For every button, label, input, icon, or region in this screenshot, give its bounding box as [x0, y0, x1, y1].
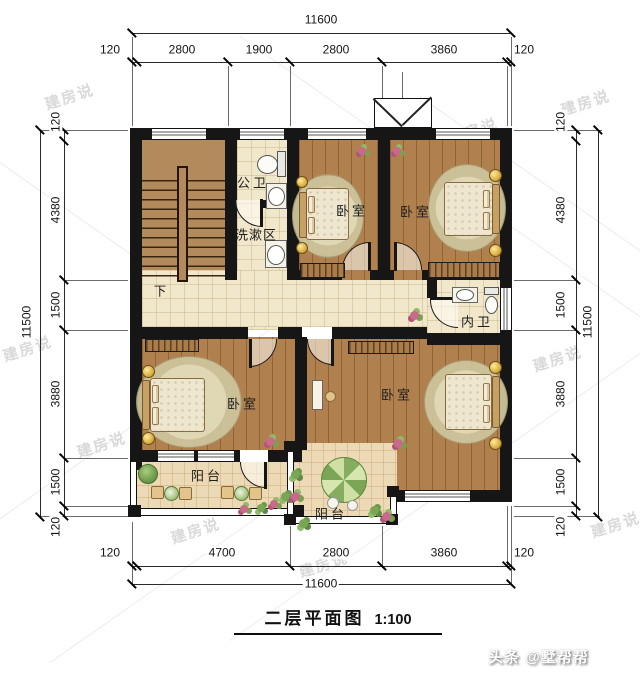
flower-pot-icon [240, 505, 248, 513]
door-leaf [368, 242, 371, 271]
table-icon [347, 500, 358, 511]
dim-top-seg: 120 [512, 43, 536, 56]
chair-icon [179, 487, 192, 500]
parasol-icon [321, 457, 367, 503]
watermark-text: 建房说 [588, 507, 640, 543]
drawing-scale: 1:100 [374, 612, 411, 628]
balcony-left-rail [130, 508, 304, 516]
dim-right-seg: 3880 [554, 379, 567, 410]
chair-icon [151, 486, 164, 499]
extension-line [514, 280, 576, 281]
door-leaf [264, 462, 267, 489]
wall-corridor-north [370, 270, 394, 280]
extension-line [402, 72, 403, 98]
dim-top-total: 11600 [303, 13, 339, 26]
dim-bottom-total: 11600 [303, 577, 339, 590]
dim-line-left-total [40, 130, 41, 517]
table-icon [164, 486, 179, 501]
extension-line [228, 66, 229, 126]
dim-bottom-seg: 3860 [429, 546, 460, 559]
flower-pot-icon [358, 147, 366, 155]
window [240, 128, 284, 140]
label-public-bath: 公卫 [237, 173, 269, 192]
wall-ensuite-west [427, 280, 437, 298]
dim-top-seg: 2800 [167, 43, 198, 56]
chair-icon [325, 391, 336, 402]
door-leaf [260, 199, 263, 227]
dim-left-seg: 4380 [49, 195, 62, 226]
dim-bottom-seg: 4700 [207, 546, 238, 559]
window [152, 128, 206, 140]
lamp-icon [296, 242, 308, 254]
label-ensuite-bath: 内卫 [461, 312, 493, 331]
toilet-tank-icon [277, 151, 286, 177]
desk-icon [312, 380, 323, 410]
bed-headboard-icon [142, 380, 150, 430]
dim-left-seg: 120 [49, 110, 62, 134]
flower-pot-icon [393, 147, 401, 155]
wall-bedrooms-divider-top [378, 140, 390, 280]
pillow-icon [308, 217, 315, 234]
rail-post [128, 505, 141, 517]
rail-post [284, 441, 296, 452]
wardrobe-icon [348, 341, 414, 354]
dim-right-seg: 120 [554, 515, 567, 539]
dim-bottom-seg: 120 [512, 546, 536, 559]
extension-line [382, 526, 383, 568]
chair-icon [221, 486, 234, 499]
sink-basin-icon [267, 245, 285, 265]
lamp-icon [142, 432, 155, 445]
extension-line [514, 330, 576, 331]
wall-bedrooms-divider-bottom [295, 337, 307, 450]
dim-right-seg: 1500 [554, 290, 567, 321]
dim-right-seg: 120 [554, 110, 567, 134]
lamp-icon [296, 176, 308, 188]
pillow-icon [483, 212, 490, 230]
wardrobe-icon [428, 262, 500, 278]
plant-icon [299, 519, 308, 528]
window [436, 128, 490, 140]
watermark-text: 建房说 [168, 513, 223, 549]
wall-ensuite-south [427, 333, 512, 345]
pillow-icon [152, 407, 159, 425]
plant-icon [370, 506, 379, 515]
lamp-icon [142, 365, 155, 378]
extension-line [132, 37, 133, 126]
watermark-text: 建房说 [74, 427, 129, 463]
lamp-icon [489, 169, 502, 182]
plant-icon [257, 504, 265, 512]
plant-icon [281, 492, 290, 501]
flower-pot-icon [270, 500, 278, 508]
chair-icon [249, 487, 262, 500]
extension-line [514, 458, 576, 459]
dim-top-seg: 3860 [429, 43, 460, 56]
label-bedroom-bottom-right: 卧室 [381, 385, 413, 404]
extension-line [290, 526, 291, 568]
dim-right-seg: 4380 [554, 195, 567, 226]
drawing-title: 二层平面图1:100 [234, 604, 442, 635]
wall-corridor-south [332, 327, 427, 339]
extension-line [64, 458, 128, 459]
dim-line-right-total [598, 130, 599, 517]
pillow-icon [308, 196, 315, 213]
sink-basin-icon [268, 187, 285, 206]
bed-headboard-icon [299, 192, 307, 238]
dim-top-seg: 2800 [321, 43, 352, 56]
window [500, 288, 512, 330]
pillow-icon [483, 405, 490, 423]
wardrobe-icon [300, 263, 345, 278]
wall-corridor-south [130, 327, 248, 339]
extension-line [64, 280, 128, 281]
extension-line [514, 506, 576, 507]
label-balcony-bottom: 阳台 [315, 504, 347, 523]
door-leaf [249, 339, 252, 368]
label-stairs-down: 下 [154, 281, 167, 300]
door-leaf [394, 242, 397, 271]
lamp-icon [489, 437, 502, 450]
dim-line-top-total [132, 33, 511, 34]
toilet-bowl-icon [257, 155, 278, 174]
extension-line [290, 66, 291, 126]
dim-left-seg: 1500 [49, 467, 62, 498]
dim-left-seg: 1500 [49, 290, 62, 321]
door-opening [240, 450, 268, 462]
window [158, 450, 194, 462]
dim-top-seg: 120 [98, 43, 122, 56]
label-bedroom-bottom-left: 卧室 [227, 394, 259, 413]
table-icon [234, 486, 249, 501]
wardrobe-icon [145, 339, 199, 352]
dim-left-seg: 120 [49, 515, 62, 539]
bed-headboard-icon [492, 376, 500, 428]
pillow-icon [483, 383, 490, 401]
dim-right-total: 11500 [581, 304, 594, 340]
flower-pot-icon [291, 492, 300, 501]
pillow-icon [152, 385, 159, 403]
dim-right-seg: 1500 [554, 467, 567, 498]
flower-pot-icon [410, 311, 419, 320]
flower-pot-icon [382, 512, 391, 521]
extension-line [507, 66, 508, 126]
rail-post [387, 486, 399, 497]
stair-railing [177, 166, 188, 282]
dim-bottom-seg: 2800 [321, 546, 352, 559]
door-leaf [331, 339, 334, 366]
rail-post [284, 514, 296, 525]
lamp-icon [489, 244, 502, 257]
dim-bottom-seg: 120 [98, 546, 122, 559]
plant-icon [291, 470, 300, 479]
drawing-title-text: 二层平面图 [264, 609, 364, 628]
toilet-tank-icon [484, 287, 499, 295]
extension-line [64, 506, 128, 507]
label-bedroom-top-left: 卧室 [336, 201, 368, 220]
extension-line [507, 506, 508, 568]
extension-line [132, 522, 133, 584]
plant-icon [138, 464, 158, 484]
extension-line [64, 330, 128, 331]
lamp-icon [489, 361, 502, 374]
flower-pot-icon [394, 439, 403, 448]
window [405, 490, 470, 502]
author-credit: 头条 @墅帮帮 [488, 646, 589, 667]
balcony-left-rail [130, 462, 137, 510]
dim-left-seg: 3880 [49, 379, 62, 410]
flower-pot-icon [266, 437, 275, 446]
window [198, 450, 234, 462]
dim-top-seg: 1900 [244, 43, 275, 56]
label-wash-area: 洗漱区 [235, 225, 277, 244]
dim-left-total: 11500 [20, 304, 33, 340]
balcony-bottom-rail [287, 443, 294, 524]
dim-line-bottom-segments [132, 566, 511, 567]
sink-basin-icon [456, 289, 474, 301]
label-balcony-left: 阳台 [191, 466, 223, 485]
bed-headboard-icon [492, 184, 500, 234]
label-bedroom-top-right: 卧室 [400, 202, 432, 221]
window [308, 128, 366, 140]
pillow-icon [483, 190, 490, 208]
dim-line-top-segments [132, 62, 511, 63]
wall-stair-bath [225, 140, 237, 280]
